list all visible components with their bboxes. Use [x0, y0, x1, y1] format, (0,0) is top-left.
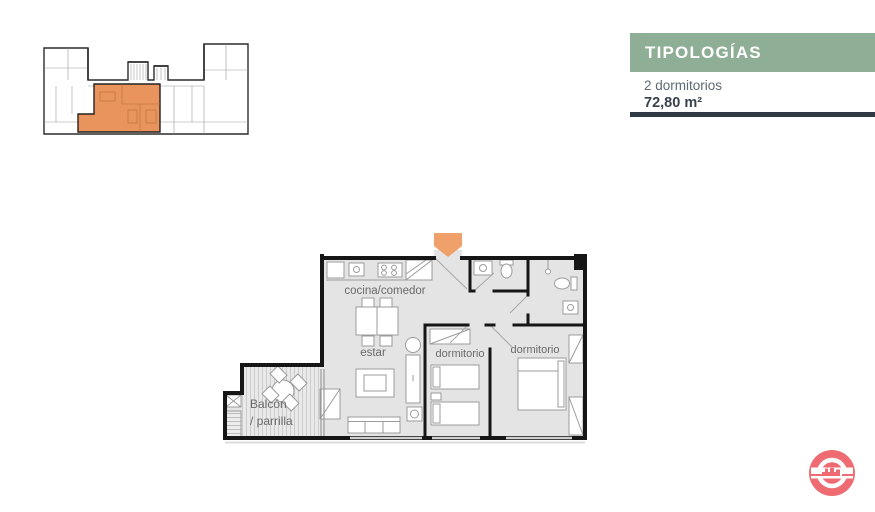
room-label-kitchen: cocina/comedor: [344, 285, 425, 297]
room-label-living: estar: [360, 347, 386, 359]
divider-rule: [630, 112, 875, 117]
kitchen-fixtures: [326, 260, 432, 280]
page-title: TIPOLOGÍAS: [645, 43, 762, 63]
brand-logo: [808, 449, 856, 497]
room-label-bedroom1: dormitorio: [436, 348, 485, 360]
room-label-bedroom2: dormitorio: [511, 344, 560, 356]
bedroom-count-label: 2 dormitorios: [644, 77, 875, 94]
building-key-plan-drawing: [42, 40, 250, 142]
apartment-floor-plan: cocina/comedor estar dormitorio dormitor…: [222, 225, 592, 450]
room-label-balcony-line1: Balcón: [250, 397, 287, 411]
brand-logo-icon: [808, 449, 856, 497]
typology-summary: 2 dormitorios 72,80 m²: [644, 77, 875, 112]
building-key-plan: [42, 40, 250, 142]
service-shaft: [574, 254, 585, 270]
typologies-banner: TIPOLOGÍAS: [630, 33, 875, 72]
apartment-floor-plan-drawing: cocina/comedor estar dormitorio dormitor…: [222, 225, 592, 450]
area-label: 72,80 m²: [644, 94, 875, 112]
room-label-balcony-line2: / parrilla: [250, 414, 293, 428]
